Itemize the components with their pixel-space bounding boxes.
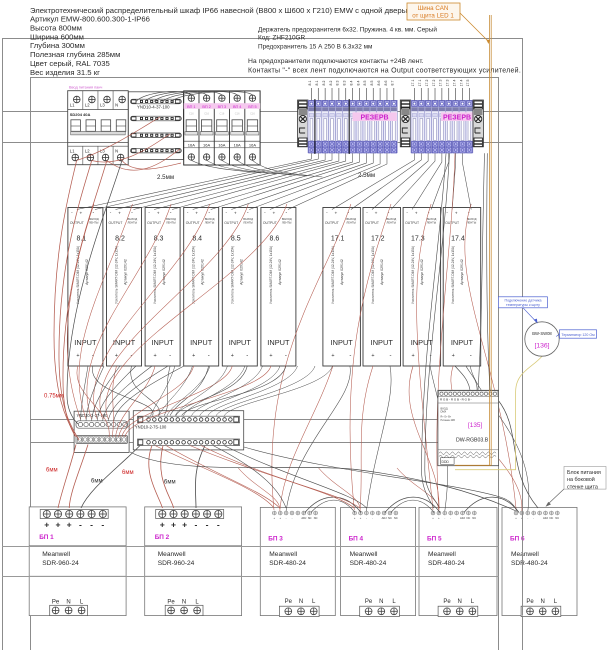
svg-text:Усилитель SMART-DIM (12-24V, 1: Усилитель SMART-DIM (12-24V, 1х15А) — [230, 246, 234, 304]
svg-text:+: + — [412, 353, 415, 359]
svg-text:РЕЗЕРВ: РЕЗЕРВ — [443, 114, 471, 121]
svg-text:Усилитель SMART-DIM (12-24V, 1: Усилитель SMART-DIM (12-24V, 1х15А) — [115, 246, 119, 304]
svg-text:Артикул 029142: Артикул 029142 — [201, 259, 205, 285]
svg-text:8.2: 8.2 — [322, 81, 326, 86]
svg-text:ВЫХОД: ВЫХОД — [166, 217, 176, 221]
svg-text:N: N — [541, 599, 545, 605]
svg-text:ЛЕНТЫ: ЛЕНТЫ — [387, 220, 397, 224]
svg-text:8.5: 8.5 — [363, 81, 367, 86]
svg-text:+: + — [272, 212, 275, 217]
svg-text:-: - — [285, 353, 287, 359]
svg-text:L2: L2 — [85, 103, 90, 108]
svg-text:8.2: 8.2 — [329, 81, 333, 86]
svg-text:BW-SW08: BW-SW08 — [532, 331, 552, 336]
svg-text:[135]: [135] — [468, 422, 482, 429]
svg-text:Артикул 029142: Артикул 029142 — [340, 259, 344, 285]
svg-text:ВП 2: ВП 2 — [202, 105, 210, 109]
svg-text:17.1: 17.1 — [331, 236, 345, 243]
svg-text:+: + — [157, 212, 160, 217]
svg-text:-: - — [101, 520, 104, 530]
svg-text:+: + — [115, 353, 118, 359]
svg-text:8.7: 8.7 — [391, 81, 395, 86]
svg-text:INPUT: INPUT — [152, 338, 175, 347]
svg-text:-: - — [390, 353, 392, 359]
svg-text:БП 1: БП 1 — [39, 534, 54, 541]
svg-text:17.4: 17.4 — [459, 80, 463, 87]
svg-text:Pe: Pe — [285, 599, 293, 605]
svg-text:Усилитель SMART-DIM (12-24V, 1: Усилитель SMART-DIM (12-24V, 1х15А) — [192, 246, 196, 304]
svg-text:NC: NC — [314, 516, 318, 520]
svg-text:2.5мм: 2.5мм — [358, 172, 375, 179]
svg-text:Шина CAN: Шина CAN — [418, 5, 449, 12]
svg-text:8.1: 8.1 — [308, 81, 312, 86]
svg-text:ВЫХОД: ВЫХОД — [128, 217, 138, 221]
svg-text:Pe: Pe — [52, 600, 60, 606]
svg-text:8.5: 8.5 — [231, 236, 241, 243]
svg-text:+: + — [44, 520, 49, 530]
svg-text:-: - — [366, 517, 367, 520]
svg-text:SDR-480-24: SDR-480-24 — [428, 560, 465, 567]
svg-text:ВП 1: ВП 1 — [187, 105, 195, 109]
svg-text:Глубина 300мм: Глубина 300мм — [30, 41, 85, 50]
svg-text:-: - — [217, 520, 220, 530]
svg-text:C16: C16 — [235, 112, 240, 116]
svg-text:-: - — [470, 353, 472, 359]
svg-text:Meanwell: Meanwell — [158, 551, 186, 558]
svg-text:БП 5: БП 5 — [427, 536, 442, 543]
svg-text:8.6: 8.6 — [377, 81, 381, 86]
svg-text:+: + — [452, 353, 455, 359]
svg-text:NC: NC — [388, 516, 392, 520]
svg-text:SDR-480-24: SDR-480-24 — [269, 560, 306, 567]
svg-text:ВП 3: ВП 3 — [218, 105, 226, 109]
svg-text:ЛЕНТЫ: ЛЕНТЫ — [89, 220, 99, 224]
svg-text:OUTPUT: OUTPUT — [70, 221, 84, 225]
svg-text:6мм: 6мм — [122, 470, 134, 476]
svg-text:-: - — [208, 210, 210, 216]
svg-text:ЛЕНТЫ: ЛЕНТЫ — [346, 220, 356, 224]
svg-text:8.1: 8.1 — [315, 81, 319, 86]
svg-text:Контакты "-" всех лент подключ: Контакты "-" всех лент подключаются на O… — [248, 67, 521, 75]
svg-text:17.3: 17.3 — [446, 80, 450, 87]
svg-text:ЛЕНТЫ: ЛЕНТЫ — [467, 220, 477, 224]
svg-text:8.3: 8.3 — [154, 236, 164, 243]
svg-text:C16: C16 — [250, 112, 255, 116]
svg-text:8.1: 8.1 — [77, 236, 87, 243]
svg-text:Meanwell: Meanwell — [269, 551, 297, 558]
svg-text:-: - — [450, 517, 451, 520]
svg-text:-: - — [533, 517, 534, 520]
svg-text:SDR-960-24: SDR-960-24 — [158, 560, 195, 567]
svg-text:17.2: 17.2 — [371, 236, 385, 243]
svg-text:N: N — [458, 599, 462, 605]
svg-text:Вес изделия 31.5 кг: Вес изделия 31.5 кг — [30, 68, 100, 77]
svg-text:6мм: 6мм — [91, 479, 103, 485]
svg-text:ЛЕНТЫ: ЛЕНТЫ — [205, 220, 215, 224]
svg-text:-: - — [286, 517, 287, 520]
svg-text:Артикул 029142: Артикул 029142 — [162, 259, 166, 285]
svg-text:Артикул 029142: Артикул 029142 — [380, 259, 384, 285]
svg-text:17.2: 17.2 — [432, 80, 436, 87]
svg-text:-: - — [79, 520, 82, 530]
svg-text:+: + — [331, 353, 334, 359]
svg-text:Ширина 600мм: Ширина 600мм — [30, 32, 84, 41]
svg-text:INPUT: INPUT — [190, 338, 213, 347]
svg-text:R G B - R G B - R G B -: R G B - R G B - R G B - — [440, 398, 472, 402]
svg-text:INPUT: INPUT — [411, 338, 434, 347]
svg-text:6мм: 6мм — [46, 468, 58, 474]
svg-text:ВП 4: ВП 4 — [233, 105, 241, 109]
svg-text:Meanwell: Meanwell — [350, 551, 378, 558]
svg-text:+: + — [171, 520, 176, 530]
svg-text:C16: C16 — [220, 112, 225, 116]
svg-text:8.2: 8.2 — [115, 236, 125, 243]
svg-text:ADJ: ADJ — [460, 516, 466, 520]
svg-text:+: + — [67, 520, 72, 530]
svg-text:от щита LED 1: от щита LED 1 — [412, 13, 454, 20]
svg-text:DDD: DDD — [442, 460, 450, 464]
svg-text:16А: 16А — [249, 142, 256, 147]
svg-text:C16: C16 — [204, 112, 209, 116]
svg-text:ADJ: ADJ — [301, 516, 307, 520]
svg-text:ЛЕНТЫ: ЛЕНТЫ — [166, 220, 176, 224]
svg-text:8.4: 8.4 — [349, 81, 353, 86]
svg-text:-: - — [208, 353, 210, 359]
svg-text:РЕЗЕРВ: РЕЗЕРВ — [360, 114, 388, 121]
svg-text:-: - — [247, 210, 249, 216]
svg-text:ВЫХОД: ВЫХОД — [467, 217, 477, 221]
svg-text:17.1: 17.1 — [411, 80, 415, 87]
svg-text:DW-RGB03.B: DW-RGB03.B — [456, 438, 489, 444]
svg-text:ВП 5: ВП 5 — [248, 105, 256, 109]
svg-text:N: N — [379, 599, 383, 605]
svg-text:-: - — [90, 520, 93, 530]
svg-text:+: + — [375, 212, 378, 217]
svg-text:C16: C16 — [189, 112, 194, 116]
svg-text:ЛЕНТЫ: ЛЕНТЫ — [282, 220, 292, 224]
svg-text:Подключение датчика: Подключение датчика — [505, 298, 542, 302]
svg-text:БП 3: БП 3 — [268, 536, 283, 543]
svg-text:Артикул EMW-800.600.300-1-IP66: Артикул EMW-800.600.300-1-IP66 — [30, 15, 150, 24]
svg-text:OUTPUT: OUTPUT — [445, 221, 459, 225]
svg-text:Артикул 029142: Артикул 029142 — [278, 259, 282, 285]
svg-text:17.2: 17.2 — [425, 80, 429, 87]
svg-text:-: - — [92, 353, 94, 359]
svg-text:Meanwell: Meanwell — [42, 551, 70, 558]
svg-text:OUTPUT: OUTPUT — [263, 221, 277, 225]
svg-text:стенке щита: стенке щита — [567, 485, 598, 491]
svg-text:NC: NC — [550, 516, 554, 520]
svg-text:8.6: 8.6 — [270, 236, 280, 243]
svg-text:Предохранитель 15 А 250 В 6.3х: Предохранитель 15 А 250 В 6.3х32 мм — [258, 44, 372, 51]
svg-text:INPUT: INPUT — [74, 338, 97, 347]
svg-text:Усилитель SMART-DIM (12-24V, 1: Усилитель SMART-DIM (12-24V, 1х15А) — [451, 246, 455, 304]
svg-text:17.3: 17.3 — [439, 80, 443, 87]
svg-text:Усилитель SMART-DIM (12-24V, 1: Усилитель SMART-DIM (12-24V, 1х15А) — [153, 246, 157, 304]
svg-text:ВЫХОД: ВЫХОД — [427, 217, 437, 221]
svg-text:N: N — [182, 600, 186, 606]
svg-text:8.3: 8.3 — [336, 81, 340, 86]
svg-text:Pe: Pe — [526, 599, 534, 605]
svg-text:N: N — [115, 149, 118, 154]
svg-text:L3: L3 — [100, 103, 105, 108]
svg-text:8.5: 8.5 — [370, 81, 374, 86]
svg-text:8.4: 8.4 — [356, 81, 360, 86]
svg-text:-: - — [372, 517, 373, 520]
svg-text:Полезная глубина 285мм: Полезная глубина 285мм — [30, 50, 120, 59]
svg-text:+: + — [192, 353, 195, 359]
svg-text:+: + — [76, 353, 79, 359]
svg-text:Блок питания: Блок питания — [567, 470, 601, 476]
svg-text:ВЫХОД: ВЫХОД — [205, 217, 215, 221]
svg-text:+: + — [455, 212, 458, 217]
svg-text:+: + — [118, 212, 121, 217]
svg-text:INPUT: INPUT — [229, 338, 252, 347]
svg-text:ЛЕНТЫ: ЛЕНТЫ — [128, 220, 138, 224]
svg-text:Pe: Pe — [167, 600, 175, 606]
svg-text:-: - — [444, 517, 445, 520]
svg-text:INPUT: INPUT — [267, 338, 290, 347]
svg-text:16А: 16А — [203, 142, 210, 147]
svg-text:+: + — [55, 520, 60, 530]
svg-text:ADJ: ADJ — [382, 516, 388, 520]
svg-text:Держатель предохранителя 6х32.: Держатель предохранителя 6х32. Пружина. … — [258, 26, 437, 34]
svg-text:SDR-960-24: SDR-960-24 — [42, 560, 79, 567]
svg-text:SD204 40A: SD204 40A — [70, 112, 91, 117]
svg-text:Ввод питания панч: Ввод питания панч — [69, 86, 102, 90]
svg-text:YND10-2-7S-100: YND10-2-7S-100 — [135, 424, 167, 429]
svg-text:Усилитель SMART-DIM (12-24V, 1: Усилитель SMART-DIM (12-24V, 1х15А) — [331, 246, 335, 304]
svg-text:ВЫХОД: ВЫХОД — [282, 217, 292, 221]
svg-text:INPUT: INPUT — [451, 338, 474, 347]
svg-text:OUTPUT: OUTPUT — [224, 221, 238, 225]
svg-text:17.4: 17.4 — [451, 236, 465, 243]
svg-text:на боковой: на боковой — [567, 476, 595, 483]
svg-text:температуры к щиту: температуры к щиту — [506, 303, 540, 307]
svg-text:17.4: 17.4 — [452, 80, 456, 87]
svg-text:ВЫХОД: ВЫХОД — [89, 217, 99, 221]
svg-text:На предохранители подключаются: На предохранители подключаются контакты … — [248, 58, 424, 65]
svg-text:L1: L1 — [70, 149, 75, 154]
svg-text:+: + — [234, 212, 237, 217]
svg-text:OUTPUT: OUTPUT — [325, 221, 339, 225]
svg-text:SDR-480-24: SDR-480-24 — [350, 560, 387, 567]
svg-text:ВЫХОД: ВЫХОД — [387, 217, 397, 221]
svg-text:+: + — [160, 520, 165, 530]
svg-text:NC: NC — [394, 516, 398, 520]
svg-text:YND10-4-37-100: YND10-4-37-100 — [137, 105, 170, 110]
svg-text:-: - — [170, 210, 172, 216]
svg-text:0.75мм: 0.75мм — [44, 394, 64, 400]
svg-text:Терминатор 120 Ом: Терминатор 120 Ом — [561, 333, 595, 337]
svg-text:-: - — [527, 517, 528, 520]
svg-text:ВЫХОД: ВЫХОД — [346, 217, 356, 221]
svg-text:+: + — [231, 353, 234, 359]
svg-text:16А: 16А — [218, 142, 225, 147]
svg-text:-: - — [93, 210, 95, 216]
svg-text:OUTPUT: OUTPUT — [365, 221, 379, 225]
svg-text:17.1: 17.1 — [418, 80, 422, 87]
svg-text:Электротехнический распределит: Электротехнический распределительный шка… — [30, 6, 412, 15]
svg-text:Pe: Pe — [443, 599, 451, 605]
svg-text:Усилитель SMART-DIM (12-24V, 1: Усилитель SMART-DIM (12-24V, 1х15А) — [269, 246, 273, 304]
svg-text:NC: NC — [555, 516, 559, 520]
svg-text:-: - — [206, 520, 209, 530]
svg-text:-: - — [349, 353, 351, 359]
svg-text:OUTPUT: OUTPUT — [109, 221, 123, 225]
svg-text:-: - — [286, 210, 288, 216]
svg-text:L1: L1 — [70, 103, 75, 108]
svg-text:-: - — [292, 517, 293, 520]
svg-text:17.5: 17.5 — [466, 80, 470, 87]
svg-text:+: + — [269, 353, 272, 359]
svg-text:NC: NC — [308, 516, 312, 520]
svg-text:+: + — [79, 212, 82, 217]
svg-text:INPUT: INPUT — [331, 338, 354, 347]
svg-text:+: + — [154, 353, 157, 359]
svg-text:16А: 16А — [234, 142, 241, 147]
svg-text:ВЫХОД: ВЫХОД — [243, 217, 253, 221]
svg-text:-: - — [169, 353, 171, 359]
svg-text:-: - — [194, 520, 197, 530]
svg-text:Артикул 029142: Артикул 029142 — [124, 259, 128, 285]
svg-text:INPUT: INPUT — [371, 338, 394, 347]
svg-text:+: + — [195, 212, 198, 217]
svg-text:+: + — [182, 520, 187, 530]
svg-text:NC: NC — [472, 516, 476, 520]
svg-text:+: + — [415, 212, 418, 217]
svg-text:+: + — [334, 212, 337, 217]
svg-text:Артикул 029142: Артикул 029142 — [420, 259, 424, 285]
svg-text:DMX: DMX — [441, 410, 447, 414]
svg-text:8.6: 8.6 — [384, 81, 388, 86]
svg-text:-: - — [131, 210, 133, 216]
svg-text:Артикул 029142: Артикул 029142 — [460, 259, 464, 285]
svg-text:Код: ZHF210GR: Код: ZHF210GR — [258, 34, 305, 41]
svg-text:-: - — [246, 353, 248, 359]
svg-text:L2: L2 — [85, 149, 90, 154]
svg-text:SDR-480-24: SDR-480-24 — [511, 560, 548, 567]
svg-text:N: N — [299, 599, 303, 605]
svg-text:[136]: [136] — [534, 343, 549, 350]
svg-text:Цвет серый, RAL 7035: Цвет серый, RAL 7035 — [30, 59, 110, 68]
svg-text:2.5мм: 2.5мм — [157, 174, 174, 181]
svg-text:ADJ: ADJ — [543, 516, 549, 520]
svg-text:Meanwell: Meanwell — [511, 551, 539, 558]
svg-text:16А: 16А — [188, 142, 195, 147]
svg-text:OUTPUT: OUTPUT — [405, 221, 419, 225]
svg-text:N: N — [115, 103, 118, 108]
svg-text:Усилитель SMART-DIM (12-24V, 1: Усилитель SMART-DIM (12-24V, 1х15А) — [411, 246, 415, 304]
svg-text:Pe: Pe — [365, 599, 373, 605]
svg-text:БП 4: БП 4 — [349, 536, 364, 543]
svg-text:Усилитель SMART-DIM (12-24V, 1: Усилитель SMART-DIM (12-24V, 1х15А) — [371, 246, 375, 304]
svg-text:N: N — [66, 600, 70, 606]
svg-text:Питание 24В: Питание 24В — [441, 419, 456, 422]
svg-text:Высота 800мм: Высота 800мм — [30, 24, 82, 33]
svg-text:6мм: 6мм — [164, 480, 176, 486]
svg-text:БП 2: БП 2 — [155, 534, 170, 541]
svg-text:NC: NC — [467, 516, 471, 520]
svg-text:8.3: 8.3 — [343, 81, 347, 86]
svg-text:ЛЕНТЫ: ЛЕНТЫ — [243, 220, 253, 224]
svg-text:OUTPUT: OUTPUT — [186, 221, 200, 225]
svg-text:OUTPUT: OUTPUT — [147, 221, 161, 225]
svg-text:Meanwell: Meanwell — [428, 551, 456, 558]
svg-text:+: + — [371, 353, 374, 359]
svg-text:ЛЕНТЫ: ЛЕНТЫ — [427, 220, 437, 224]
